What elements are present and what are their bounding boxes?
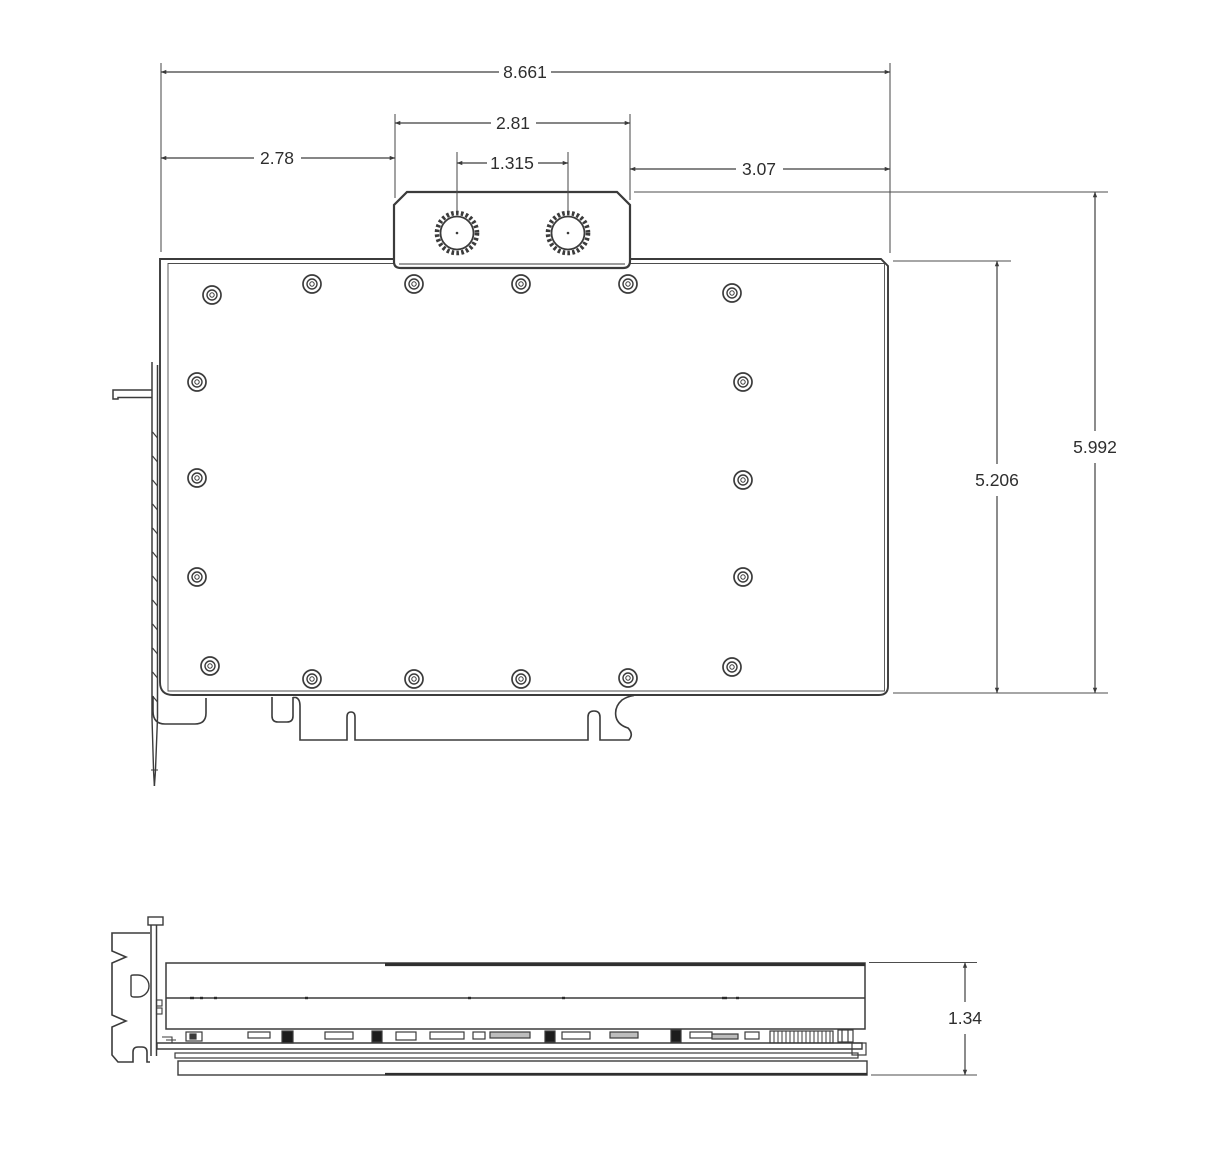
dim-terminal-right-offset-label: 3.07 <box>742 159 776 179</box>
dim-terminal-left-offset-label: 2.78 <box>260 148 294 168</box>
side-view: 1.34 <box>112 917 982 1075</box>
dim-port-spacing: 1.315 <box>457 153 568 173</box>
screw <box>188 469 206 487</box>
screw <box>405 670 423 688</box>
terminal-block <box>394 192 630 268</box>
pcb-components <box>186 1030 853 1043</box>
screw <box>405 275 423 293</box>
screw <box>734 373 752 391</box>
dim-terminal-right-offset: 3.07 <box>630 159 890 179</box>
dim-body-height: 5.206 <box>975 261 1019 693</box>
screw <box>734 568 752 586</box>
dim-overall-height-label: 5.992 <box>1073 437 1117 457</box>
dim-overall-height: 5.992 <box>1073 192 1117 693</box>
drawing-canvas: 8.661 2.81 2.78 1.315 3.07 <box>0 0 1220 1166</box>
dim-terminal-width-label: 2.81 <box>496 113 530 133</box>
screw <box>303 670 321 688</box>
screw <box>188 568 206 586</box>
screw <box>203 286 221 304</box>
screw <box>734 471 752 489</box>
pci-bracket-side-view <box>112 917 163 1062</box>
technical-drawing-page: 8.661 2.81 2.78 1.315 3.07 <box>0 0 1220 1166</box>
screw <box>303 275 321 293</box>
screw <box>619 669 637 687</box>
block-slab-side <box>166 963 865 1029</box>
dim-terminal-left-offset: 2.78 <box>161 148 395 168</box>
dim-terminal-width: 2.81 <box>395 113 630 133</box>
backplate-side <box>175 1043 867 1075</box>
dim-side-thickness-label: 1.34 <box>948 1008 982 1028</box>
pci-bracket-top-view <box>113 362 158 786</box>
dim-side-thickness: 1.34 <box>869 963 982 1076</box>
screw <box>723 284 741 302</box>
pcie-edge-connector <box>153 696 634 741</box>
dim-port-spacing-label: 1.315 <box>490 153 534 173</box>
block-body <box>160 259 888 695</box>
screw <box>201 657 219 675</box>
screw <box>723 658 741 676</box>
screw <box>512 670 530 688</box>
dim-overall-width: 8.661 <box>161 62 890 82</box>
screw <box>619 275 637 293</box>
dim-body-height-label: 5.206 <box>975 470 1019 490</box>
screw <box>512 275 530 293</box>
screw <box>188 373 206 391</box>
top-view: 8.661 2.81 2.78 1.315 3.07 <box>113 62 1117 786</box>
fin-stack <box>770 1031 833 1043</box>
dim-overall-width-label: 8.661 <box>503 62 547 82</box>
